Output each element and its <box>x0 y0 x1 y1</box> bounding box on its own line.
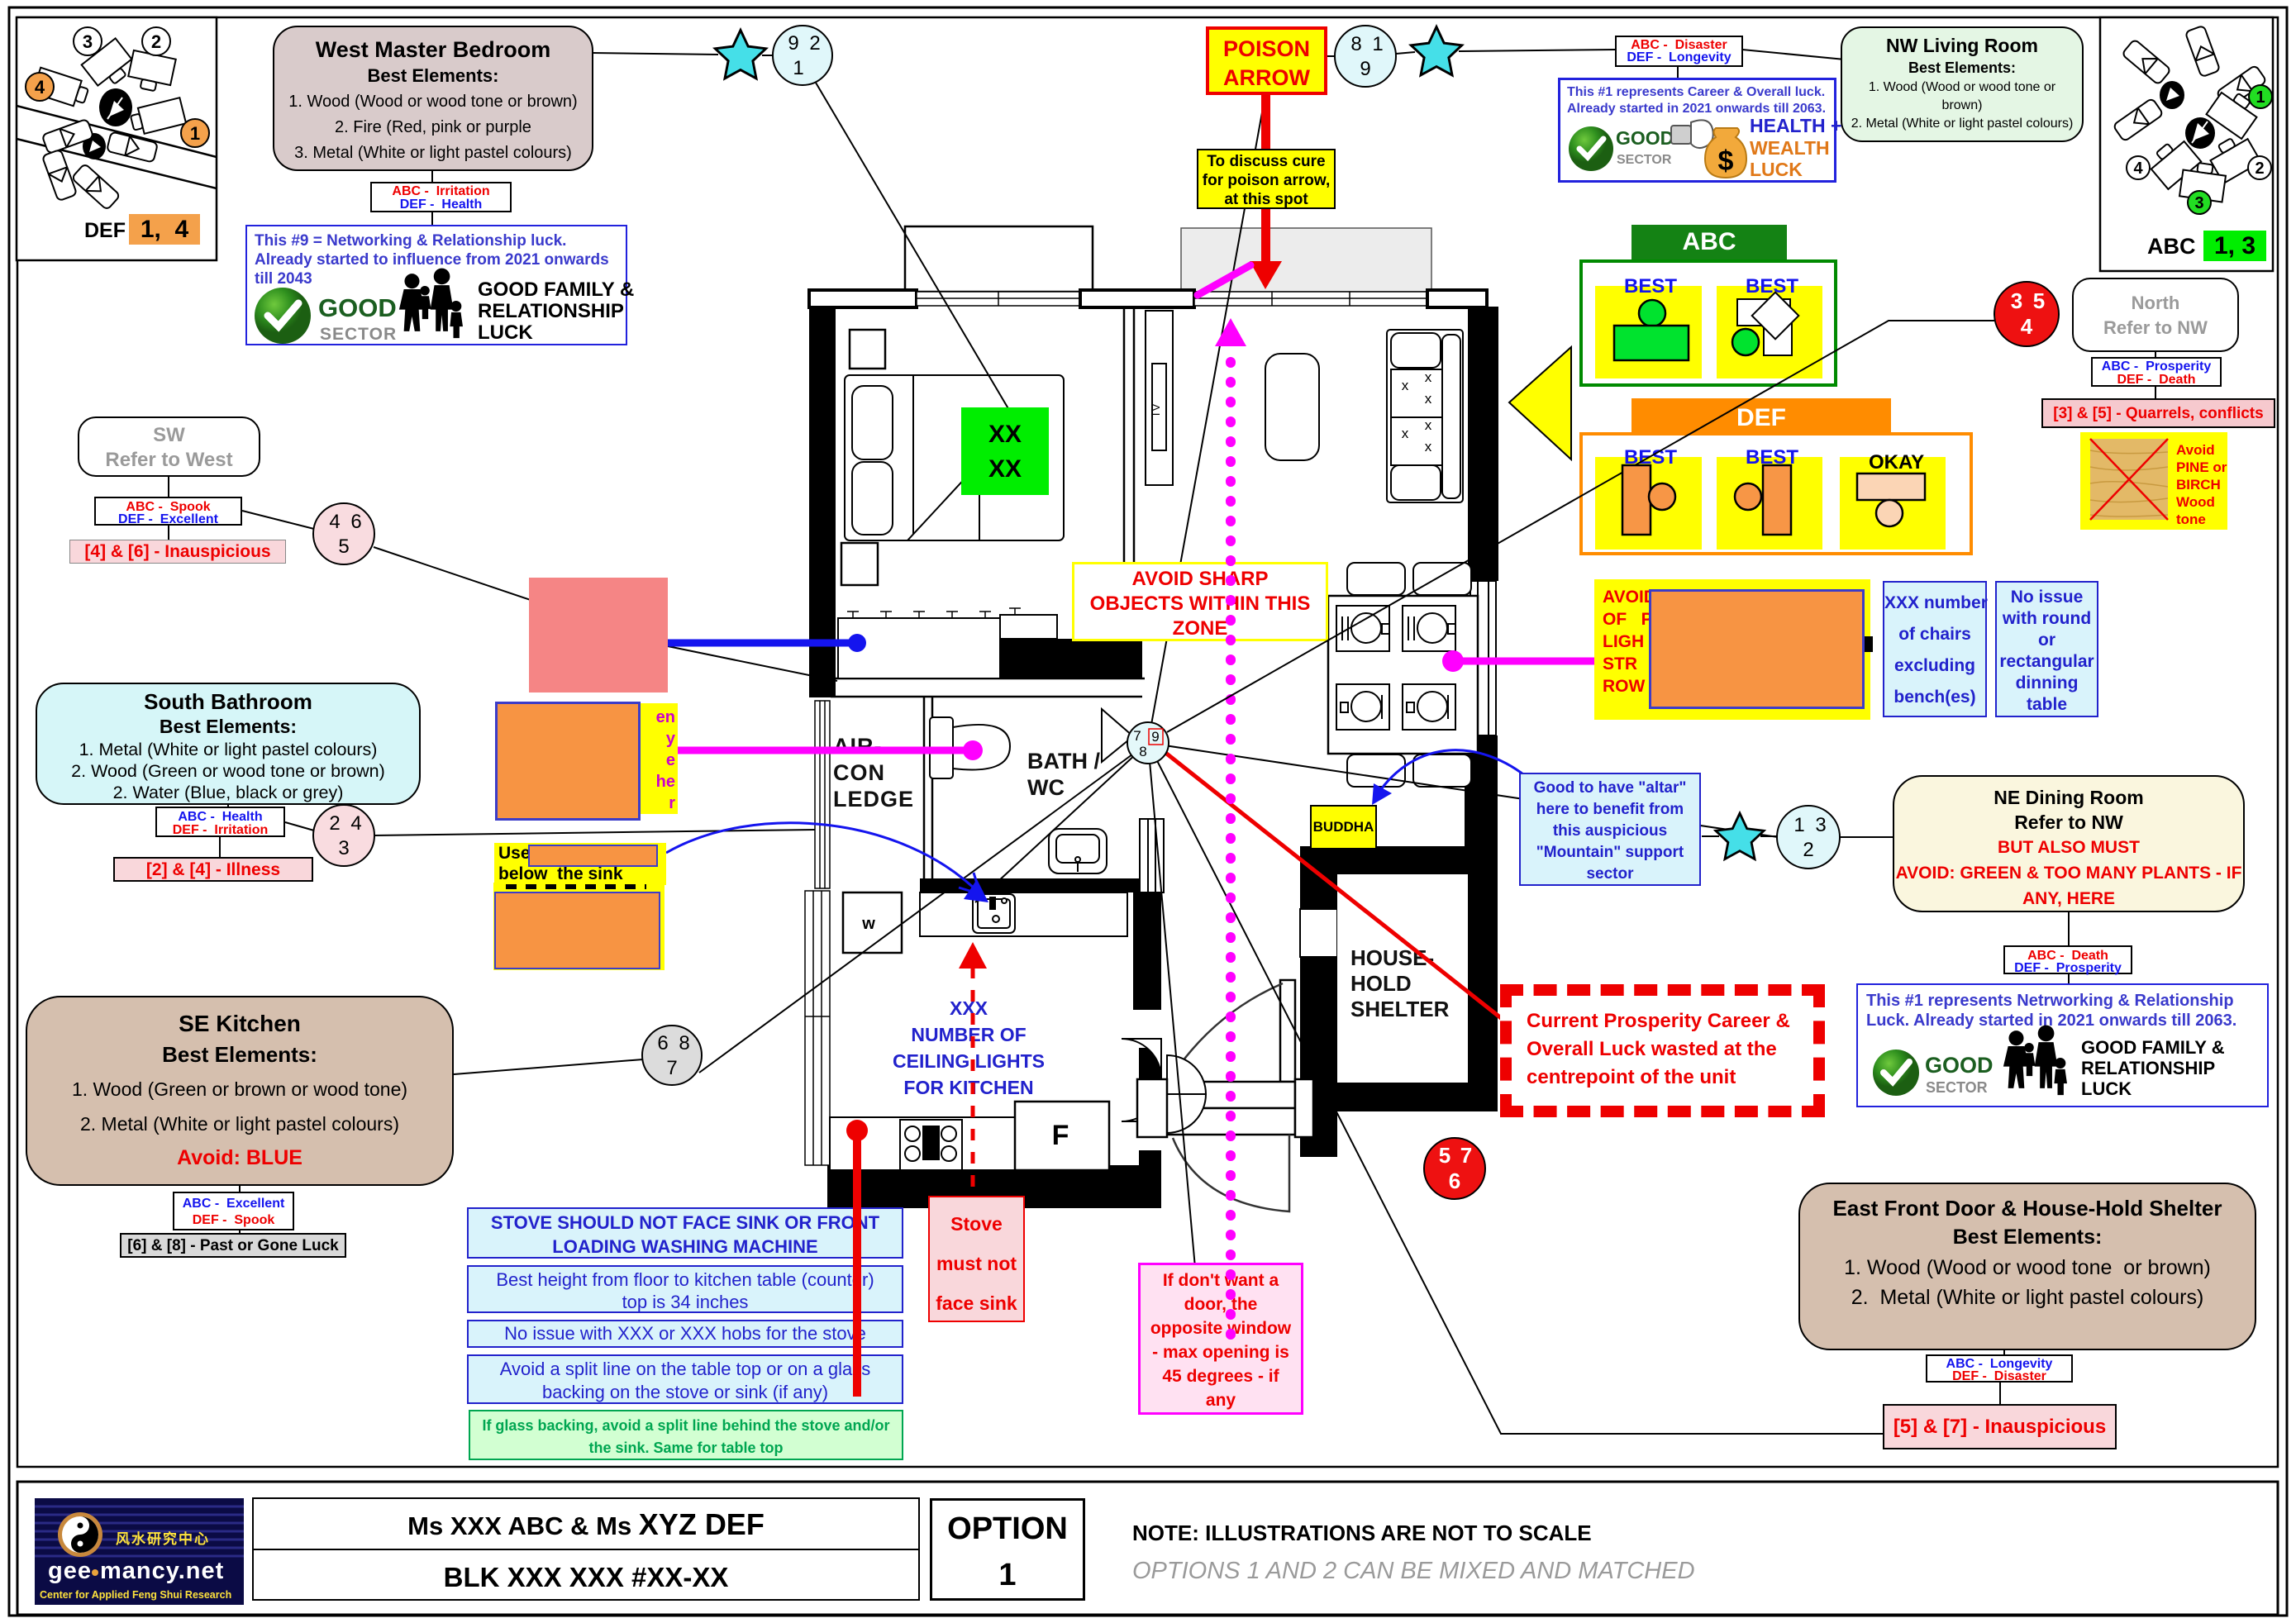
svg-text:SECTOR: SECTOR <box>1926 1079 1988 1096</box>
svg-text:GOOD: GOOD <box>318 293 397 322</box>
svg-text:LUCK: LUCK <box>478 321 533 344</box>
svg-text:GOOD: GOOD <box>1925 1053 1994 1078</box>
svg-text:LUCK: LUCK <box>2081 1078 2132 1099</box>
svg-text:RELATIONSHIP: RELATIONSHIP <box>2081 1058 2215 1078</box>
svg-text:RELATIONSHIP: RELATIONSHIP <box>478 300 624 322</box>
svg-text:SECTOR: SECTOR <box>1617 153 1672 167</box>
svg-text:SECTOR: SECTOR <box>320 325 397 344</box>
svg-text:$: $ <box>1718 145 1734 177</box>
svg-text:LUCK: LUCK <box>1750 159 1803 180</box>
svg-text:HEALTH +: HEALTH + <box>1750 115 1841 136</box>
svg-text:GOOD FAMILY &: GOOD FAMILY & <box>2081 1037 2225 1058</box>
svg-text:GOOD FAMILY &: GOOD FAMILY & <box>478 278 634 301</box>
svg-text:WEALTH: WEALTH <box>1750 137 1830 159</box>
svg-text:GOOD: GOOD <box>1616 127 1674 149</box>
